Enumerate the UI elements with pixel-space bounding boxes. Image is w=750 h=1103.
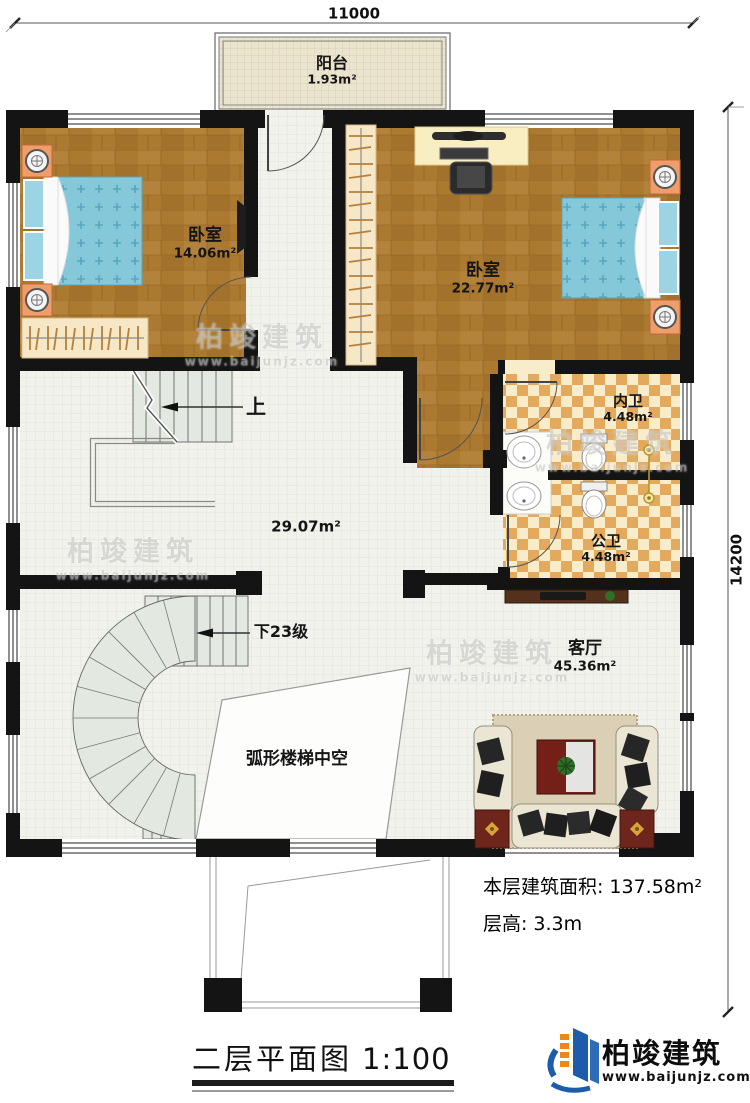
side-table-left bbox=[475, 810, 509, 848]
room-label-bath-public: 公卫 4.48m² bbox=[581, 533, 630, 565]
desk-chair bbox=[450, 162, 492, 194]
title-underline bbox=[192, 1080, 454, 1086]
upper-stairs bbox=[133, 368, 243, 442]
room-label-balcony: 阳台 1.93m² bbox=[307, 55, 356, 88]
side-table-right bbox=[620, 810, 654, 848]
balcony-doorway bbox=[265, 110, 323, 128]
room-label-bedroom-left: 卧室 14.06m² bbox=[174, 226, 237, 261]
floor-height-row: 层高:3.3m bbox=[483, 909, 702, 936]
nightstand-right-top bbox=[650, 160, 680, 194]
dimension-right: 14200 bbox=[728, 534, 745, 586]
bath-inner-doorway bbox=[505, 360, 555, 374]
floor-area-label: 本层建筑面积: bbox=[483, 876, 603, 898]
room-label-hall-area: 29.07m² bbox=[271, 518, 341, 535]
title-text: 二层平面图 bbox=[192, 1042, 352, 1076]
floor-plan-page: 柏竣建筑 www.baijunjz.com 柏竣建筑 www.baijunjz.… bbox=[0, 0, 750, 1103]
bed-left bbox=[24, 177, 142, 285]
room-label-bedroom-right: 卧室 22.77m² bbox=[452, 261, 515, 296]
nightstand-right-bottom bbox=[650, 300, 680, 334]
sink-public-bath bbox=[507, 482, 541, 510]
company-logo-icon bbox=[540, 1026, 600, 1096]
info-block: 本层建筑面积:137.58m² 层高:3.3m bbox=[483, 872, 702, 946]
nightstand-left-bottom bbox=[22, 284, 52, 316]
floor-area-value: 137.58m² bbox=[609, 876, 702, 898]
toilet-public-bath bbox=[581, 482, 607, 518]
closet-right-bedroom bbox=[346, 125, 376, 365]
toilet-inner-bath bbox=[581, 434, 607, 471]
sink-inner-bath bbox=[507, 436, 541, 468]
sofa-right bbox=[616, 726, 658, 816]
dimension-top: 11000 bbox=[328, 5, 380, 22]
room-label-bath-inner: 内卫 4.48m² bbox=[603, 393, 652, 425]
company-logo-url: www.baijunjz.com bbox=[602, 1070, 750, 1085]
stair-up-label: 上 bbox=[246, 396, 266, 419]
tv-left-bedroom bbox=[237, 200, 246, 254]
stair-void-label: 弧形楼梯中空 bbox=[246, 750, 348, 770]
coffee-table bbox=[537, 740, 595, 794]
tv-cabinet bbox=[505, 590, 628, 603]
sofa-left bbox=[474, 726, 512, 814]
nightstand-left-top bbox=[22, 145, 52, 177]
company-logo-name: 柏竣建筑 bbox=[602, 1032, 722, 1072]
room-label-living: 客厅 45.36m² bbox=[554, 639, 617, 674]
sofa-bottom bbox=[512, 804, 622, 848]
drawing-title: 二层平面图1:100 bbox=[192, 1036, 451, 1078]
floor-height-value: 3.3m bbox=[533, 913, 582, 935]
desk bbox=[415, 127, 528, 165]
company-logo: 柏竣建筑 www.baijunjz.com bbox=[540, 1026, 750, 1096]
stair-down-label: 下23级 bbox=[254, 623, 308, 641]
wardrobe-left-bedroom bbox=[22, 318, 148, 358]
floor-height-label: 层高: bbox=[483, 913, 527, 935]
porch bbox=[204, 857, 452, 1012]
title-scale: 1:100 bbox=[362, 1042, 451, 1076]
title-underline-light bbox=[192, 1090, 454, 1092]
floor-area-row: 本层建筑面积:137.58m² bbox=[483, 872, 702, 899]
